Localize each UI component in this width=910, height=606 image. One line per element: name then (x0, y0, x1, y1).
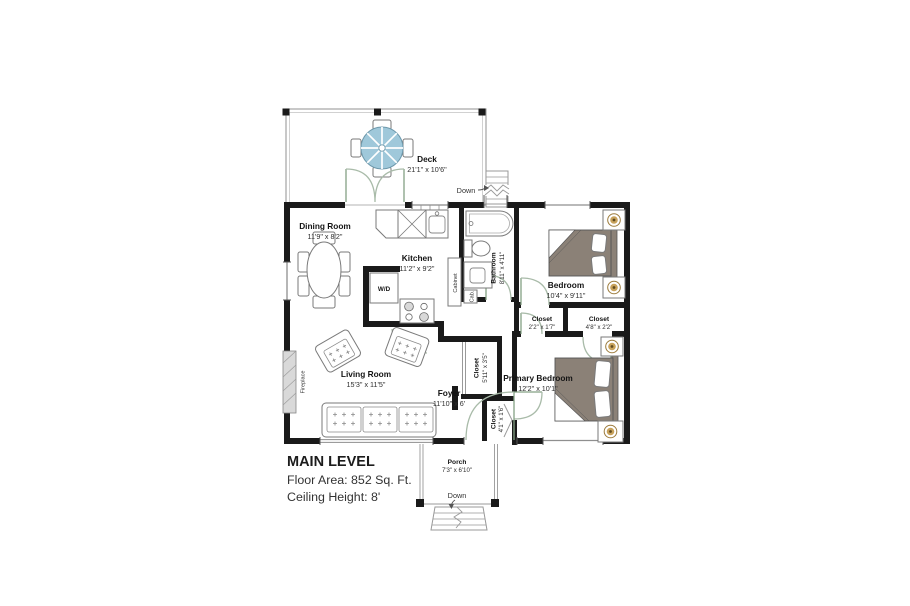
bathroom-dims: 8'11" x 4'11" (499, 252, 506, 285)
bed-headboard (611, 226, 617, 280)
kitchen-sink (426, 210, 448, 238)
primary-pillow (594, 360, 611, 387)
closet-hall-name: Closet (532, 316, 553, 323)
title-block: MAIN LEVEL Floor Area: 852 Sq. Ft. Ceili… (287, 454, 412, 504)
fireplace: Fireplace (283, 351, 307, 413)
plan-ceiling-height: Ceiling Height: 8' (287, 490, 380, 504)
foyer: Foyer 11'10" x 6' (433, 388, 466, 408)
foyer-closet-slider (463, 342, 466, 394)
deck-name: Deck (417, 154, 437, 164)
living-room: Fireplace Living Room 15'3" x 11'5" (283, 326, 436, 437)
deck-down-label: Down (457, 186, 476, 195)
deck-post (283, 109, 290, 116)
porch-post (491, 499, 499, 507)
plan-floor-area: Floor Area: 852 Sq. Ft. (287, 473, 412, 487)
dining-table (307, 242, 341, 298)
porch-dims: 7'3" x 6'10" (442, 467, 472, 474)
closet-bedroom-name: Closet (589, 316, 610, 323)
porch: Porch 7'3" x 6'10" Down (416, 444, 499, 530)
stove (400, 299, 434, 323)
floor-plan-drawing: Down Deck 21'1" x 10'6" (0, 0, 910, 606)
deck-post (374, 109, 381, 116)
closet-foyer-dims: 5'11" x 3'5" (482, 353, 489, 383)
closet-foyer-name: Closet (474, 357, 481, 378)
svg-text:Cabinet: Cabinet (453, 273, 459, 293)
bedroom-window (545, 201, 590, 209)
dining-room: Dining Room 11'9" x 8'2" (298, 221, 351, 308)
vanity-sink (464, 262, 492, 288)
deck: Down Deck 21'1" x 10'6" (283, 109, 510, 208)
living-window (320, 437, 433, 445)
kitchen-counter (376, 210, 398, 238)
dining-name: Dining Room (299, 221, 351, 231)
living-dims: 15'3" x 11'5" (347, 380, 386, 389)
bedroom-name: Bedroom (548, 280, 584, 290)
nightstand (603, 210, 625, 230)
bedroom-dims: 10'4" x 9'11" (547, 291, 586, 300)
umbrella-table (361, 127, 403, 169)
closet-entry-dims: 4'1" x 1'6" (498, 406, 505, 433)
svg-text:W/D: W/D (378, 286, 391, 293)
primary-door (514, 392, 542, 419)
floor-plan-page: Down Deck 21'1" x 10'6" (0, 0, 910, 606)
porch-down-label: Down (448, 491, 467, 500)
toilet (464, 240, 490, 257)
dining-dims: 11'9" x 8'2" (308, 232, 343, 241)
deck-stairs (485, 171, 509, 207)
cabinet: Cabinet (448, 258, 461, 306)
bed-pillow (591, 255, 607, 274)
deck-dims: 21'1" x 10'6" (407, 165, 447, 174)
bathroom-name: Bathroom (491, 252, 498, 283)
nightstand (601, 337, 623, 356)
bedroom: Bedroom 10'4" x 9'11" (547, 210, 625, 300)
nightstand (598, 421, 623, 442)
armchair (384, 326, 430, 367)
primary-window (543, 437, 603, 445)
bedroom-door (521, 278, 549, 305)
primary-pillow (594, 390, 611, 417)
bathtub (466, 211, 513, 236)
closet-bedroom-dims: 4'8" x 2'2" (586, 324, 613, 331)
living-name: Living Room (341, 369, 391, 379)
primary-bedroom: Primary Bedroom 12'2" x 10'1" (503, 337, 623, 442)
foyer-name: Foyer (438, 388, 461, 398)
foyer-dims: 11'10" x 6' (433, 399, 466, 408)
porch-post (416, 499, 424, 507)
porch-name: Porch (448, 459, 467, 466)
deck-down-arrow (478, 188, 485, 190)
primary-name: Primary Bedroom (503, 373, 573, 383)
dishwasher (398, 210, 426, 238)
closet-hall-dims: 2'2" x 1'7" (529, 324, 556, 331)
deck-post (479, 109, 486, 116)
washer-dryer: W/D (370, 273, 398, 303)
svg-text:Cab.: Cab. (470, 290, 476, 302)
bath-cabinet: Cab. (464, 290, 477, 303)
entry-closet-bifold (504, 404, 512, 437)
bathroom: Cab. Bathroom 8'11" x 4'11" (464, 211, 513, 303)
nightstand (603, 277, 625, 298)
primary-dims: 12'2" x 10'1" (518, 384, 558, 393)
armchair (314, 329, 362, 374)
kitchen-dims: 11'2" x 9'2" (400, 264, 435, 273)
sofa (322, 403, 436, 437)
plan-title: MAIN LEVEL (287, 454, 375, 470)
porch-steps (431, 507, 487, 530)
kitchen-name: Kitchen (402, 253, 432, 263)
closet-entry-name: Closet (491, 408, 498, 429)
bed-pillow (591, 233, 607, 252)
dining-window (283, 262, 291, 300)
svg-text:Fireplace: Fireplace (301, 370, 307, 393)
